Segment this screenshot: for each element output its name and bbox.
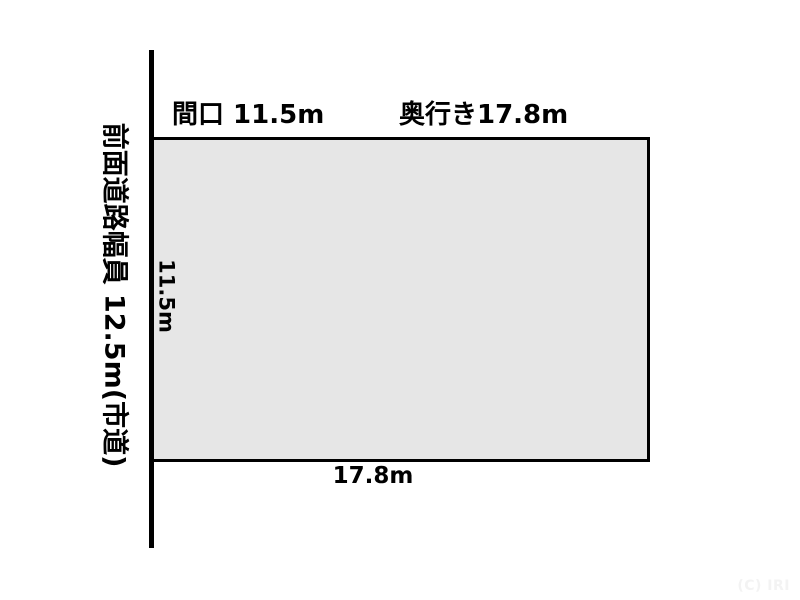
depth-header-label: 奥行き17.8m: [399, 102, 568, 128]
depth-dimension-label: 17.8m: [333, 465, 414, 488]
land-plot-area: [151, 137, 650, 462]
land-plot-diagram: 前面道路幅員 12.5m(市道) 間口 11.5m 奥行き17.8m 11.5m…: [0, 0, 800, 600]
frontage-header-label: 間口 11.5m: [172, 102, 324, 128]
frontage-dimension-label: 11.5m: [156, 259, 177, 333]
road-width-label: 前面道路幅員 12.5m(市道): [101, 123, 128, 468]
copyright-watermark: (C) IRI: [737, 579, 790, 593]
